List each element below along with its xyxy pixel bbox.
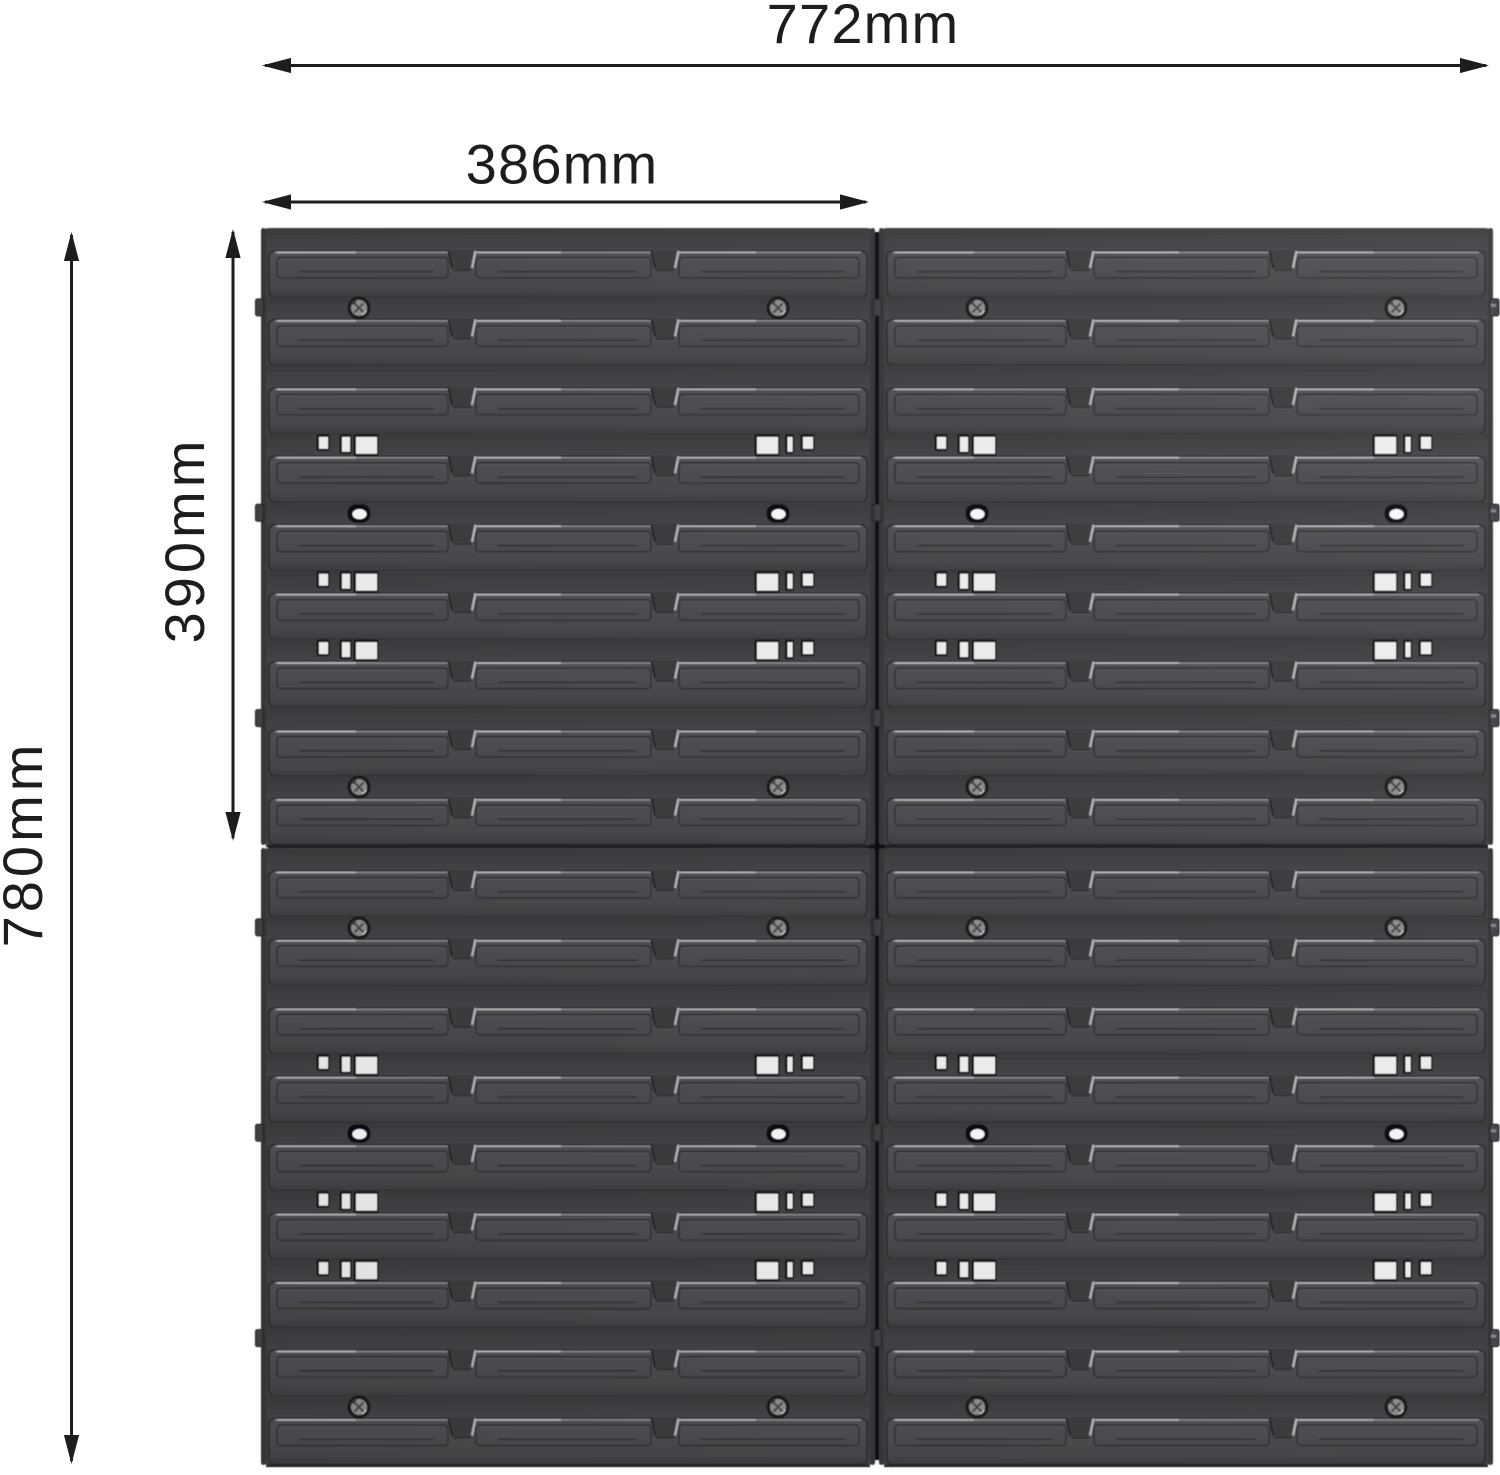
svg-text:772mm: 772mm bbox=[767, 0, 960, 55]
svg-text:386mm: 386mm bbox=[466, 133, 659, 196]
svg-text:780mm: 780mm bbox=[0, 741, 54, 948]
svg-text:390mm: 390mm bbox=[153, 437, 216, 644]
